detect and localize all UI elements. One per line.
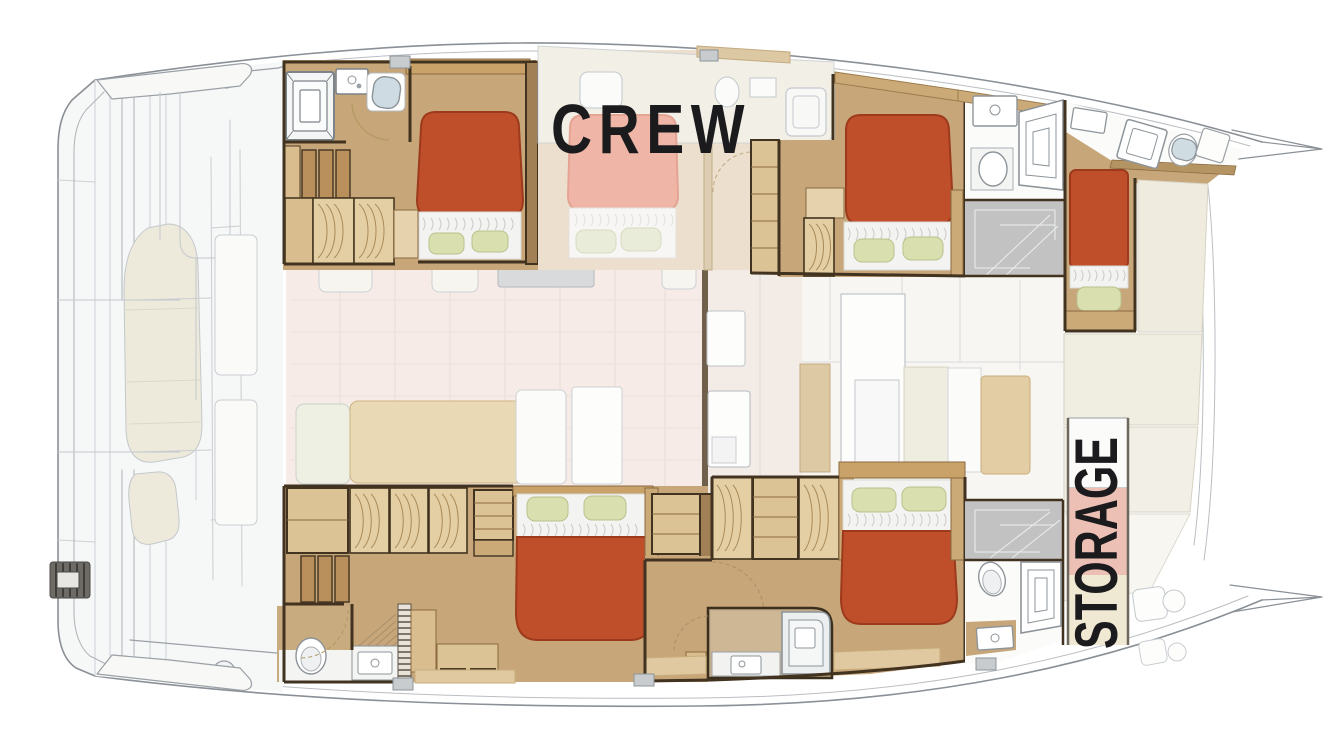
svg-text:CREW: CREW [551,90,751,168]
svg-text:STORAGE: STORAGE [1063,437,1130,649]
